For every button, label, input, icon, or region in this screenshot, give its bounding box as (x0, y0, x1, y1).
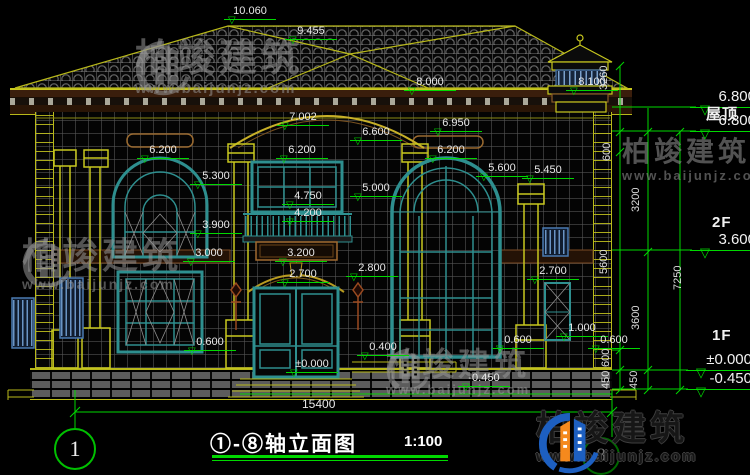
level-window-top-center: 6.200 (276, 144, 328, 159)
dim-total-width: 15400 (302, 397, 335, 411)
dim-3600: 3600 (630, 306, 642, 330)
level-window-sill-center: 4.750 (282, 190, 334, 205)
watermark-brand: 柏竣建筑 (622, 138, 750, 166)
level-1f-sill-right: 0.600 (492, 334, 544, 349)
louver-right (543, 228, 568, 256)
level-grade-right: -0.450 (686, 370, 750, 390)
level-window-sill-left: 3.900 (190, 219, 242, 234)
level-door-arch: 2.700 (277, 268, 329, 283)
axis-number: 1 (70, 436, 81, 462)
level-capital-bay: 5.000 (350, 182, 402, 197)
level-chimney: 8.100 (566, 76, 618, 91)
watermark-right: 柏竣建筑 www.baijunjz.com (622, 138, 750, 182)
watermark-roof: 柏竣建筑 www.baijunjz.com (135, 40, 303, 96)
level-ridge: 10.060 (224, 5, 276, 20)
level-1f-window-top: 3.000 (183, 247, 235, 262)
dim-450-outer: 450 (628, 371, 640, 389)
drawing-scale: 1:100 (404, 433, 442, 450)
level-cornice: 6.950 (430, 117, 482, 132)
dim-600-top: 600 (601, 143, 613, 161)
level-arch-apex: 7.002 (277, 111, 329, 126)
watermark-url: www.baijunjz.com (622, 169, 750, 182)
watermark-logo-icon (22, 238, 72, 288)
level-small-window-top: 2.700 (527, 265, 579, 280)
dim-450-inner: 450 (600, 371, 612, 389)
level-roof-right2: 6.800 (690, 112, 750, 132)
level-grade: -0.450 (458, 372, 510, 387)
level-balcony: 4.200 (282, 207, 334, 222)
level-sign: 3.200 (275, 247, 327, 262)
level-base-right: 0.600 (588, 334, 640, 349)
level-trim: 6.600 (350, 126, 402, 141)
level-1f-sill-left: 0.600 (184, 336, 236, 351)
dim-3200: 3200 (630, 188, 642, 212)
dim-600-bottom: 600 (600, 349, 612, 367)
dim-7250: 7250 (672, 266, 684, 290)
level-1f: ±0.000 (686, 351, 750, 371)
watermark-logo-icon (135, 40, 191, 96)
drawing-title: ①-⑧轴立面图 (210, 428, 357, 458)
level-window-top-right: 6.200 (425, 144, 477, 159)
level-platform: 0.400 (357, 341, 409, 356)
level-arch-spring-left: 5.300 (190, 170, 242, 185)
level-window-top-left: 6.200 (137, 144, 189, 159)
level-ground-door: ±0.000 (286, 358, 338, 373)
dim-3260: 3260 (598, 66, 610, 90)
dim-5600: 5600 (598, 250, 610, 274)
level-door-side: 2.800 (346, 262, 398, 277)
brand-logo-block: 柏竣建筑 www.baijunjz.com (536, 412, 697, 464)
level-2f: 3.600 (690, 231, 750, 251)
title-underline-thin (212, 460, 448, 461)
brand-logo-icon (536, 412, 602, 474)
level-eave: 8.000 (404, 76, 456, 91)
title-underline-thick (212, 455, 448, 458)
floor-2f-label: 2F (712, 214, 732, 231)
level-arch-spring: 5.600 (476, 162, 528, 177)
level-hip: 9.455 (285, 25, 337, 40)
floor-1f-label: 1F (712, 327, 732, 344)
watermark-left: 柏竣建筑 www.baijunjz.com (22, 238, 182, 291)
level-capital-right: 5.450 (522, 164, 574, 179)
elevation-canvas: 柏竣建筑 www.baijunjz.com 柏竣建筑 www.baijunjz.… (0, 0, 750, 475)
axis-marker-1: 1 (54, 428, 96, 470)
